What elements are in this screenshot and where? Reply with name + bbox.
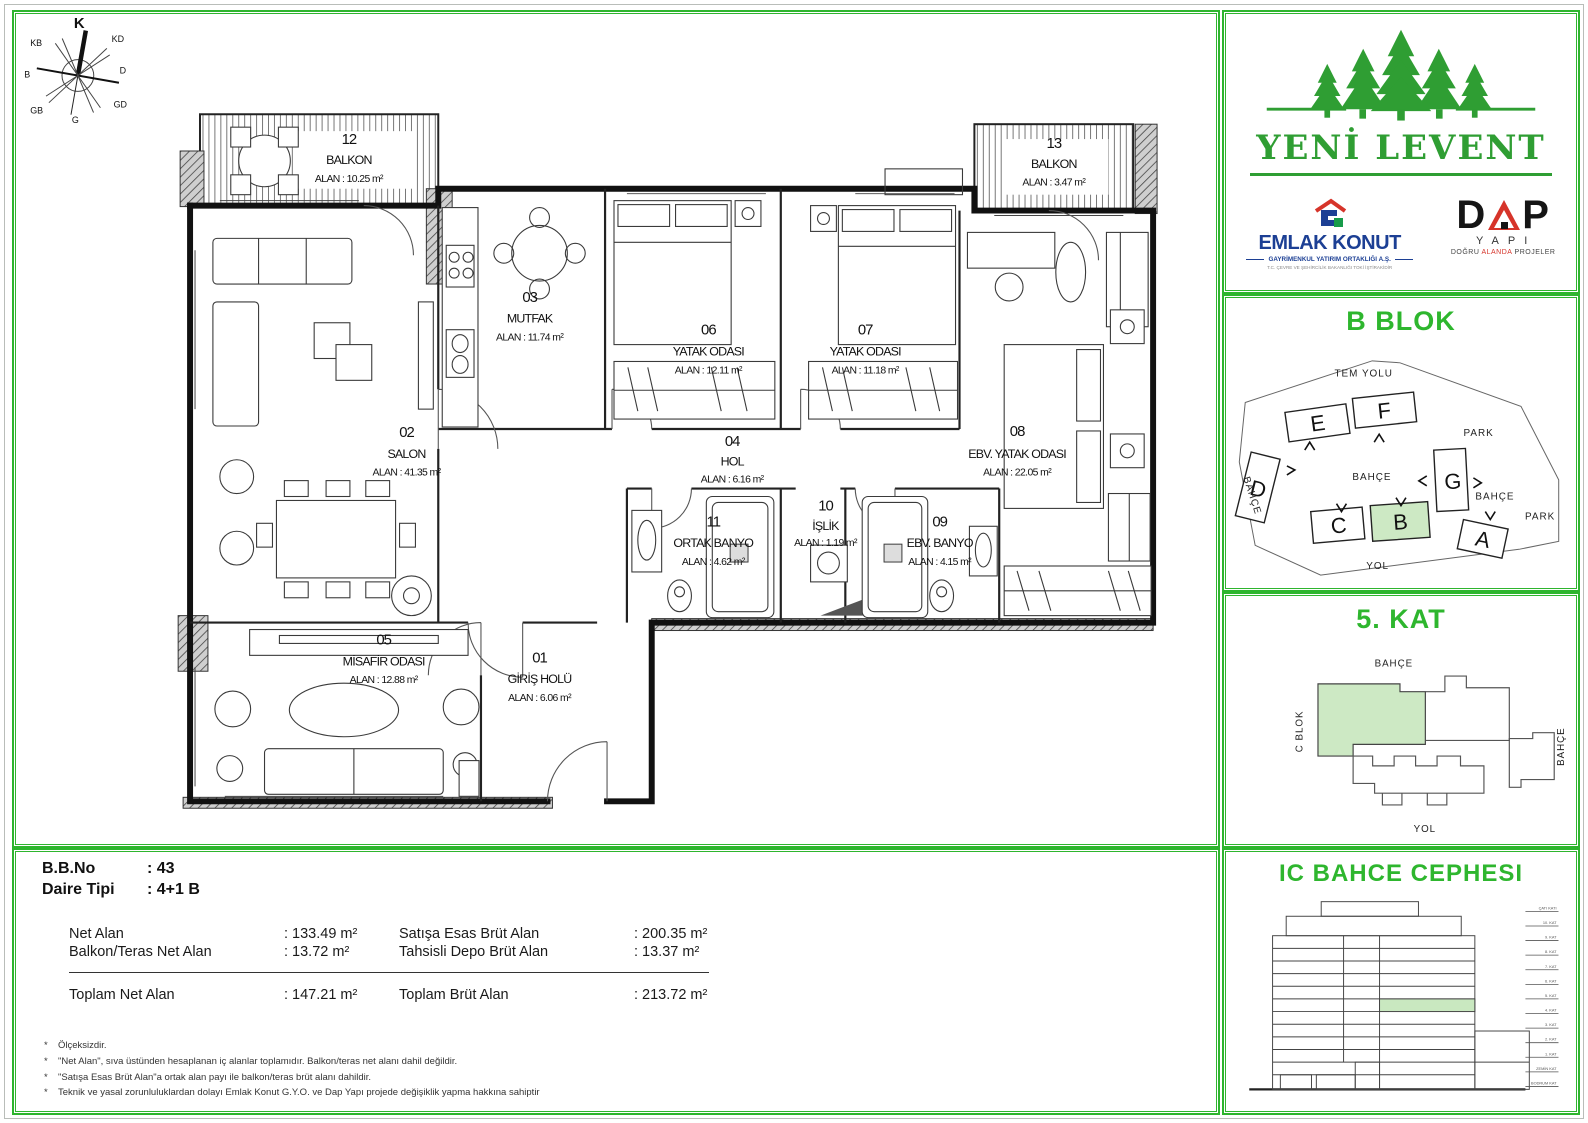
room-08-number: 08: [1010, 424, 1025, 440]
site-label-yol: YOL: [1366, 561, 1389, 572]
satisa-esas-value: : 200.35 m²: [634, 926, 759, 942]
emlak-konut-name: EMLAK KONUT: [1259, 232, 1401, 255]
room-12-number: 12: [342, 132, 357, 148]
room-10-area: ALAN : 1.19 m²: [794, 538, 858, 549]
floor-key-drawing: BAHÇE C BLOK BAHÇE YOL: [1224, 637, 1574, 842]
svg-text:10. KAT: 10. KAT: [1543, 920, 1557, 925]
site-block-c: C: [1330, 512, 1348, 538]
room-10-number: 10: [818, 498, 833, 514]
balkon-teras-value: : 13.72 m²: [284, 944, 399, 960]
svg-text:4. KAT: 4. KAT: [1545, 1008, 1557, 1013]
elevation-panel: IC BAHCE CEPHESI ÇATI KATI 10. KAT 9. KA…: [1222, 848, 1580, 1115]
net-alan-value: : 133.49 m²: [284, 926, 399, 942]
compass-label-b: B: [24, 70, 30, 80]
svg-text:2. KAT: 2. KAT: [1545, 1037, 1557, 1042]
footnotes: *Ölçeksizdir. *"Net Alan", sıva üstünden…: [44, 1038, 540, 1101]
compass-label-k: K: [74, 16, 85, 32]
balkon-teras-label: Balkon/Teras Net Alan: [69, 944, 284, 960]
site-label-bahce-center: BAHÇE: [1352, 472, 1391, 483]
room-03-area: ALAN : 11.74 m²: [496, 333, 564, 344]
dap-letter-d: D: [1456, 198, 1486, 232]
room-09-number: 09: [932, 514, 947, 530]
site-plan-drawing: TEM YOLU E F D G C B A PARK BAHÇE BAHÇE …: [1224, 339, 1574, 587]
svg-text:9. KAT: 9. KAT: [1545, 935, 1557, 940]
floor-key-label-bahce-top: BAHÇE: [1375, 658, 1413, 669]
svg-text:ÇATI KATI: ÇATI KATI: [1539, 905, 1557, 910]
satisa-esas-label: Satışa Esas Brüt Alan: [399, 926, 634, 942]
dap-letter-p: P: [1522, 198, 1550, 232]
room-12-area: ALAN : 10.25 m²: [315, 174, 384, 185]
room-04-number: 04: [725, 434, 740, 450]
room-05-name: MİSAFİR ODASI: [343, 654, 425, 668]
room-08-name: EBV. YATAK ODASI: [968, 447, 1066, 461]
room-03-name: MUTFAK: [507, 312, 554, 326]
room-09-name: EBV. BANYO: [907, 536, 974, 550]
emlak-konut-tagline: T.C. ÇEVRE VE ŞEHİRCİLİK BAKANLIĞI TOKİ …: [1267, 265, 1392, 270]
elevation-title: IC BAHCE CEPHESI: [1224, 860, 1578, 888]
room-11-name: ORTAK BANYO: [673, 536, 754, 550]
floor-key-title: 5. KAT: [1224, 604, 1578, 635]
room-05-number: 05: [376, 632, 391, 648]
compass-label-g: G: [72, 115, 79, 125]
trees-logo-icon: [1256, 26, 1546, 130]
floor-key-label-c-blok: C BLOK: [1294, 711, 1305, 753]
floor-plan-panel: K KD D GD G GB B KB: [12, 10, 1220, 848]
dap-yapi-logo: D P YAPI DOĞRU ALANDA PROJELER: [1451, 198, 1556, 256]
room-11-number: 11: [707, 514, 721, 530]
room-01-area: ALAN : 6.06 m²: [508, 693, 572, 704]
floor-key-label-bahce-right: BAHÇE: [1556, 727, 1567, 765]
room-13-name: BALKON: [1031, 157, 1077, 171]
floor-key-highlight-unit: [1318, 684, 1425, 756]
svg-text:1. KAT: 1. KAT: [1545, 1051, 1557, 1056]
footnote-2: "Net Alan", sıva üstünden hesaplanan iç …: [58, 1054, 540, 1070]
site-block-g: G: [1444, 468, 1462, 494]
site-block-b-highlighted: B: [1392, 509, 1408, 535]
compass-rose: K KD D GD G GB B KB: [24, 16, 127, 125]
elevation-drawing: ÇATI KATI 10. KAT 9. KAT 8. KAT 7. KAT 6…: [1224, 890, 1574, 1102]
toplam-brut-value: : 213.72 m²: [634, 987, 759, 1003]
furniture: [213, 127, 1151, 796]
room-07-number: 07: [858, 323, 873, 339]
room-02-area: ALAN : 41.35 m²: [373, 468, 442, 479]
emlak-konut-icon: [1312, 198, 1348, 230]
project-logo-text: YENİ LEVENT: [1250, 126, 1552, 176]
toplam-net-label: Toplam Net Alan: [69, 987, 284, 1003]
svg-text:3. KAT: 3. KAT: [1545, 1022, 1557, 1027]
metrics-divider: [69, 972, 709, 973]
elevation-highlight-floor: [1380, 999, 1475, 1012]
site-plan-title: B BLOK: [1224, 306, 1578, 337]
svg-text:6. KAT: 6. KAT: [1545, 978, 1557, 983]
room-05-area: ALAN : 12.88 m²: [350, 675, 419, 686]
site-label-park-top: PARK: [1463, 428, 1493, 439]
branding-panel: YENİ LEVENT EMLAK KONUT GAYRİMENKUL YATI…: [1222, 10, 1580, 294]
dap-tagline: DOĞRU ALANDA PROJELER: [1451, 249, 1556, 256]
room-08-area: ALAN : 22.05 m²: [983, 468, 1052, 479]
room-06-name: YATAK ODASI: [673, 345, 745, 359]
elevation-floor-labels: ÇATI KATI 10. KAT 9. KAT 8. KAT 7. KAT 6…: [1525, 905, 1558, 1086]
room-06-number: 06: [701, 323, 716, 339]
toplam-net-value: : 147.21 m²: [284, 987, 399, 1003]
room-01-number: 01: [532, 650, 547, 666]
site-label-bahce-right: BAHÇE: [1475, 492, 1514, 503]
floor-plan-drawing: K KD D GD G GB B KB: [14, 12, 1214, 842]
emlak-konut-logo: EMLAK KONUT GAYRİMENKUL YATIRIM ORTAKLIĞ…: [1246, 198, 1412, 270]
room-02-number: 02: [399, 425, 414, 441]
compass-label-gd: GD: [114, 99, 128, 109]
room-07-area: ALAN : 11.18 m²: [832, 365, 900, 376]
compass-label-gb: GB: [30, 105, 43, 115]
net-alan-label: Net Alan: [69, 926, 284, 942]
room-11-area: ALAN : 4.62 m²: [682, 557, 746, 568]
bbno-label: B.B.No: [42, 860, 147, 878]
footnote-1: Ölçeksizdir.: [58, 1038, 540, 1054]
bbno-value: : 43: [147, 860, 200, 878]
dap-triangle-icon: [1487, 198, 1521, 232]
tahsisli-depo-value: : 13.37 m²: [634, 944, 759, 960]
tahsisli-depo-label: Tahsisli Depo Brüt Alan: [399, 944, 634, 960]
unit-info-panel: B.B.No: 43 Daire Tipi: 4+1 B Net Alan : …: [12, 848, 1220, 1115]
floor-key-label-yol: YOL: [1414, 824, 1436, 835]
room-10-name: İŞLİK: [812, 519, 840, 533]
compass-label-d: D: [120, 66, 127, 76]
area-metrics-table: Net Alan : 133.49 m² Satışa Esas Brüt Al…: [69, 926, 759, 1003]
floor-key-panel: 5. KAT BAHÇE C BLOK BAHÇE YOL: [1222, 592, 1580, 848]
room-04-name: HOL: [721, 455, 745, 469]
svg-text:ZEMİN KAT: ZEMİN KAT: [1536, 1066, 1557, 1071]
svg-text:5. KAT: 5. KAT: [1545, 993, 1557, 998]
emlak-konut-subtitle: GAYRİMENKUL YATIRIM ORTAKLIĞI A.Ş.: [1246, 256, 1412, 263]
svg-text:7. KAT: 7. KAT: [1545, 964, 1557, 969]
room-06-area: ALAN : 12.11 m²: [675, 365, 743, 376]
room-12-name: BALKON: [326, 153, 372, 167]
room-03-number: 03: [522, 290, 537, 306]
site-block-f: F: [1376, 397, 1392, 423]
footnote-4: Teknik ve yasal zorunluluklardan dolayı …: [58, 1085, 540, 1101]
room-09-area: ALAN : 4.15 m²: [908, 557, 972, 568]
room-13-number: 13: [1047, 136, 1062, 152]
toplam-brut-label: Toplam Brüt Alan: [399, 987, 634, 1003]
compass-label-kb: KB: [30, 38, 42, 48]
room-02-name: SALON: [387, 447, 425, 461]
compass-label-kd: KD: [112, 34, 125, 44]
daire-tipi-value: : 4+1 B: [147, 881, 200, 899]
site-plan-panel: B BLOK TEM YOLU E F D G C B A PARK BAHÇE…: [1222, 294, 1580, 592]
dap-sub: YAPI: [1476, 235, 1536, 247]
svg-text:8. KAT: 8. KAT: [1545, 949, 1557, 954]
footnote-3: "Satışa Esas Brüt Alan"a ortak alan payı…: [58, 1070, 540, 1086]
room-04-area: ALAN : 6.16 m²: [701, 475, 765, 486]
room-01-name: GİRİŞ HOLÜ: [508, 672, 572, 686]
unit-identity: B.B.No: 43 Daire Tipi: 4+1 B: [42, 860, 200, 902]
site-label-park-right: PARK: [1525, 512, 1555, 523]
site-label-tem-yolu: TEM YOLU: [1335, 369, 1393, 380]
room-07-name: YATAK ODASI: [830, 345, 902, 359]
room-13-area: ALAN : 3.47 m²: [1022, 178, 1086, 189]
svg-text:BODRUM KAT: BODRUM KAT: [1531, 1080, 1557, 1085]
daire-tipi-label: Daire Tipi: [42, 881, 147, 899]
